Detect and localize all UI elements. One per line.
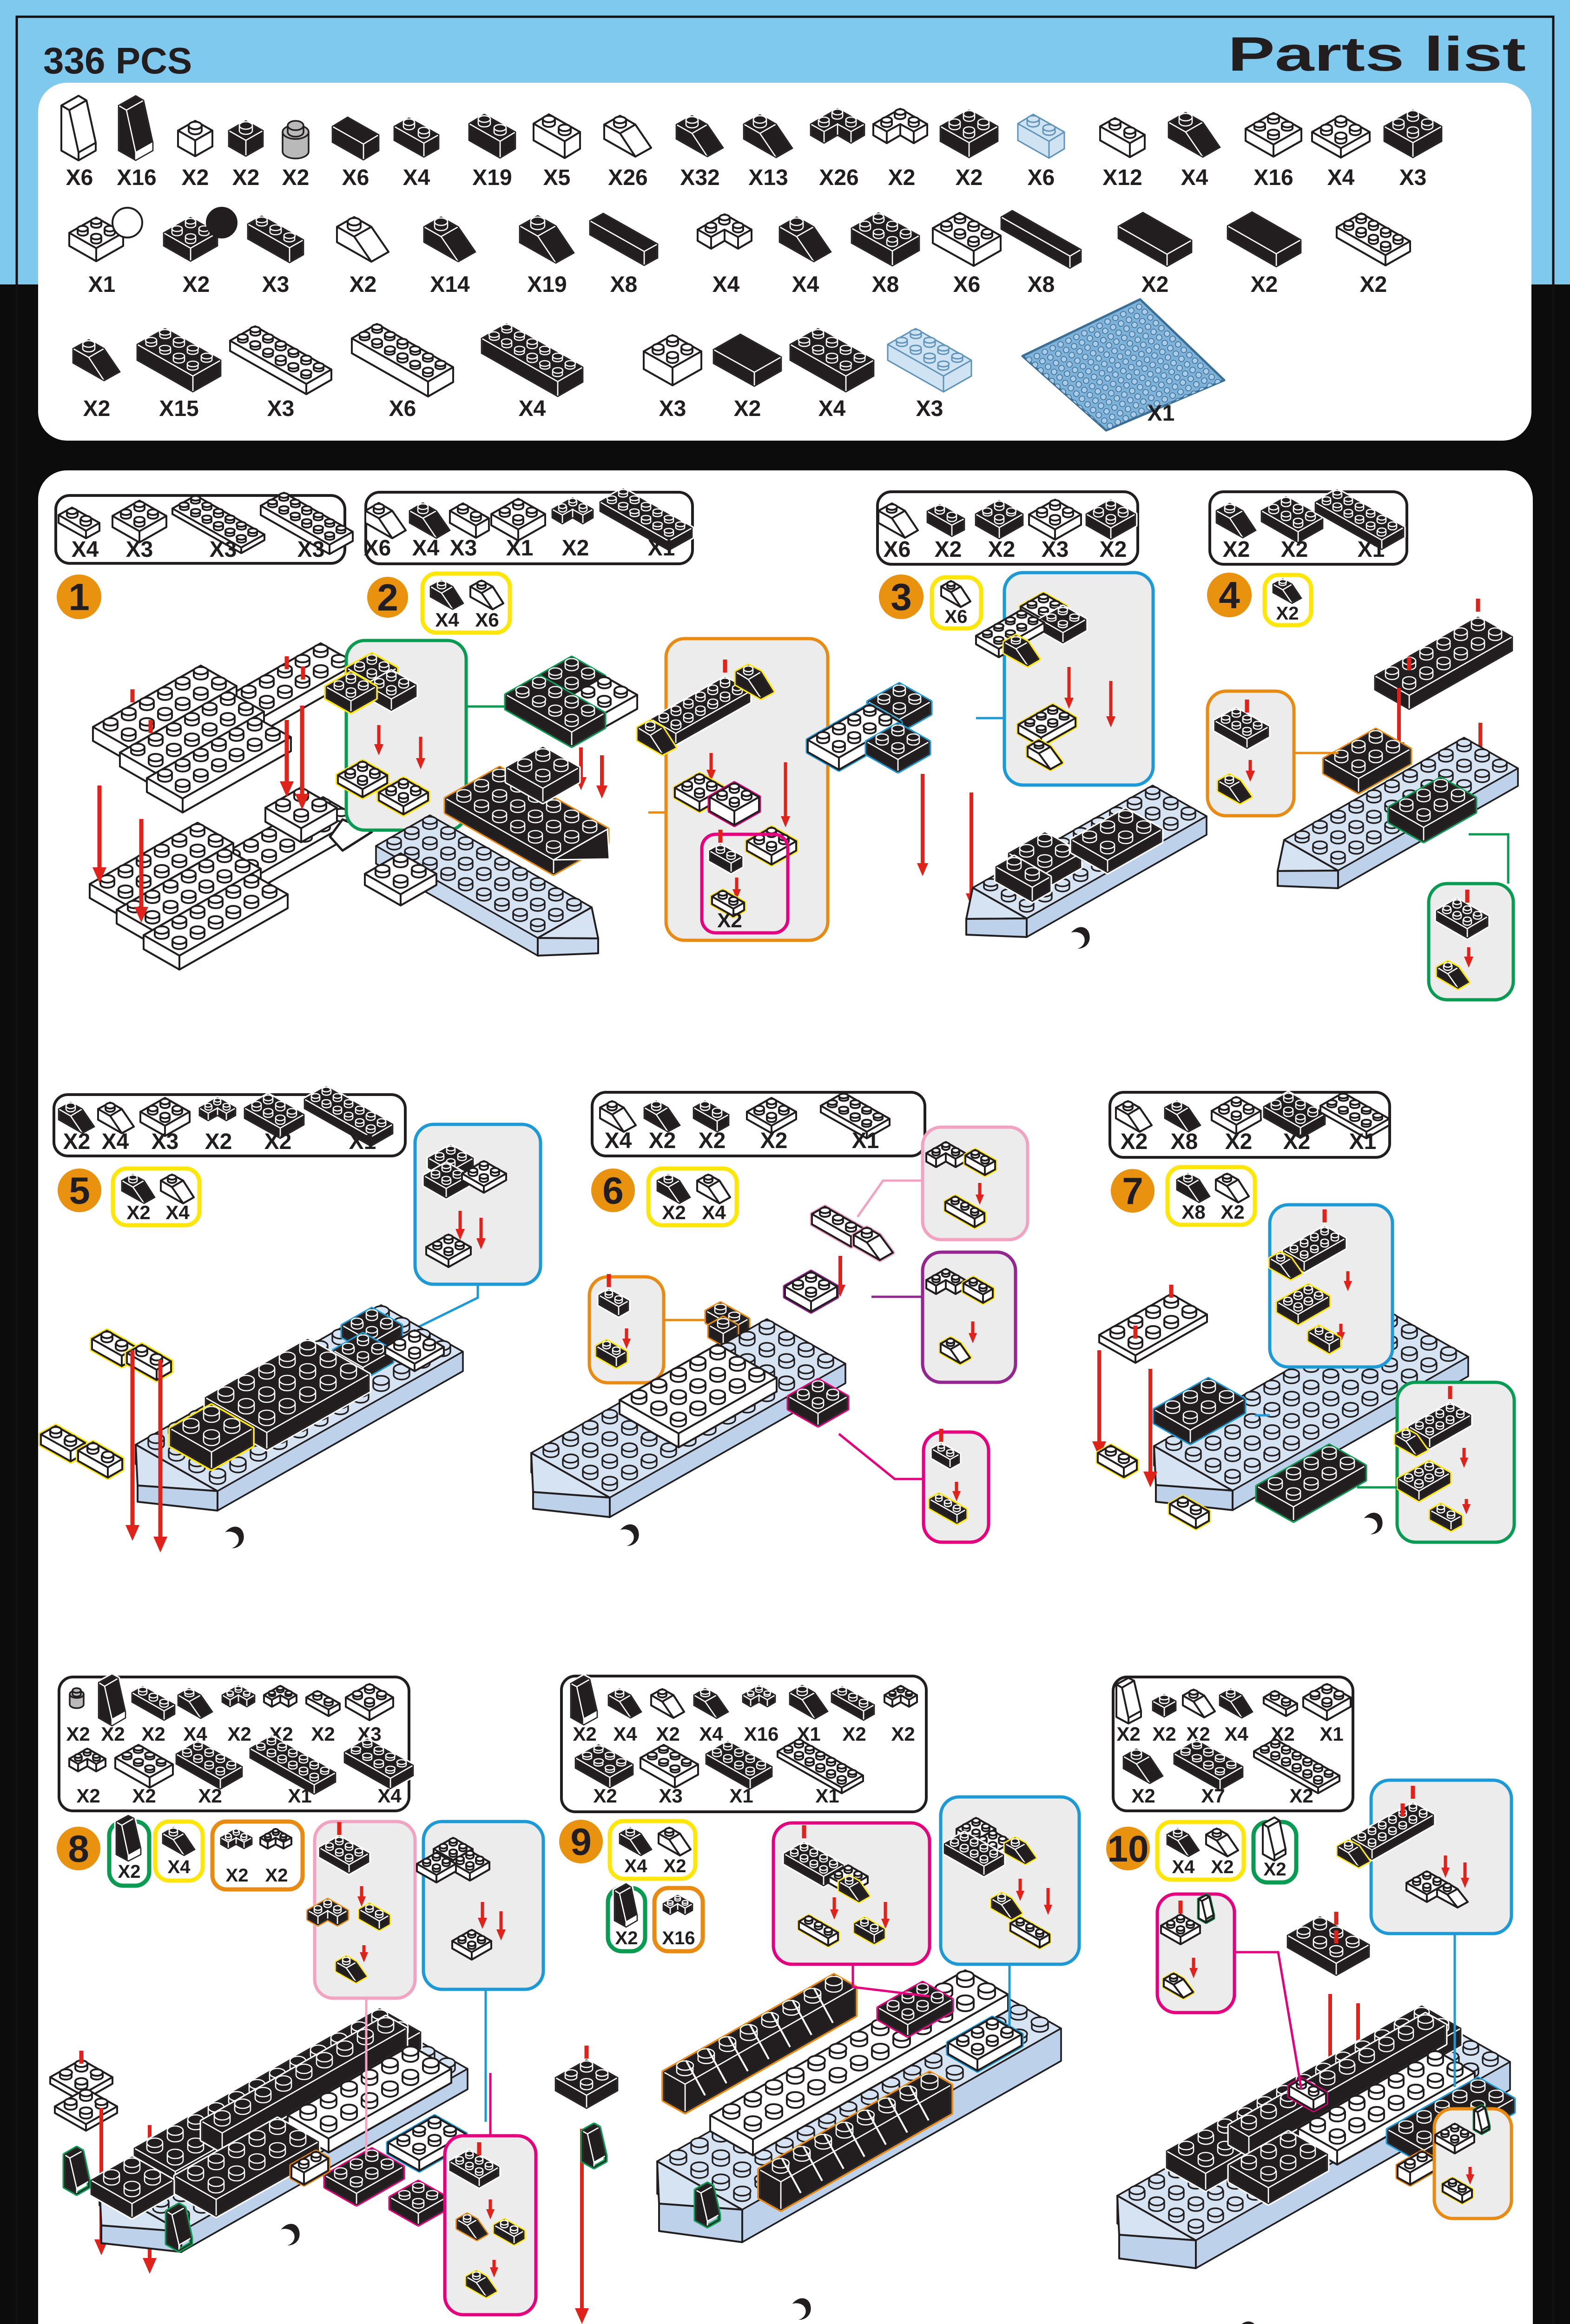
svg-text:X6: X6 bbox=[342, 165, 369, 190]
svg-text:X8: X8 bbox=[1028, 272, 1055, 297]
svg-text:X4: X4 bbox=[792, 272, 819, 297]
svg-text:X2: X2 bbox=[101, 1723, 125, 1745]
svg-text:X1: X1 bbox=[1319, 1723, 1343, 1745]
svg-text:5: 5 bbox=[69, 1170, 90, 1212]
svg-text:X2: X2 bbox=[226, 1865, 249, 1886]
svg-text:X1: X1 bbox=[648, 536, 675, 561]
svg-text:X1: X1 bbox=[288, 1785, 311, 1807]
svg-text:X4: X4 bbox=[168, 1857, 191, 1877]
svg-text:8: 8 bbox=[68, 1828, 89, 1870]
svg-text:X2: X2 bbox=[656, 1723, 679, 1745]
svg-text:X1: X1 bbox=[349, 1129, 376, 1154]
svg-text:X2: X2 bbox=[562, 536, 589, 561]
svg-text:X2: X2 bbox=[264, 1129, 292, 1154]
svg-text:X19: X19 bbox=[527, 272, 567, 297]
svg-text:X3: X3 bbox=[267, 396, 295, 421]
svg-text:X2: X2 bbox=[132, 1785, 156, 1807]
svg-text:X2: X2 bbox=[988, 537, 1016, 562]
svg-text:X2: X2 bbox=[1223, 537, 1250, 562]
svg-text:X4: X4 bbox=[1224, 1723, 1248, 1745]
svg-text:X8: X8 bbox=[1171, 1129, 1198, 1154]
svg-text:X2: X2 bbox=[76, 1785, 100, 1807]
svg-text:X4: X4 bbox=[72, 537, 99, 562]
svg-text:X1: X1 bbox=[729, 1785, 753, 1807]
svg-text:X2: X2 bbox=[141, 1723, 165, 1745]
svg-text:X4: X4 bbox=[519, 396, 546, 421]
svg-text:X2: X2 bbox=[842, 1723, 866, 1745]
svg-text:X2: X2 bbox=[1281, 537, 1308, 562]
svg-text:X6: X6 bbox=[475, 609, 499, 631]
svg-text:Parts list: Parts list bbox=[1228, 27, 1526, 81]
svg-text:X4: X4 bbox=[699, 1723, 723, 1745]
svg-text:7: 7 bbox=[1122, 1170, 1143, 1213]
svg-text:X2: X2 bbox=[891, 1723, 915, 1745]
svg-text:X2: X2 bbox=[66, 1723, 90, 1745]
svg-text:X3: X3 bbox=[210, 537, 237, 562]
svg-text:X2: X2 bbox=[126, 1202, 150, 1223]
svg-text:X4: X4 bbox=[377, 1785, 402, 1807]
svg-text:X2: X2 bbox=[1360, 272, 1387, 297]
svg-text:X2: X2 bbox=[265, 1865, 288, 1886]
svg-text:X6: X6 bbox=[953, 272, 981, 297]
svg-text:X4: X4 bbox=[1172, 1857, 1195, 1877]
svg-text:X4: X4 bbox=[403, 165, 430, 190]
svg-text:X4: X4 bbox=[412, 536, 440, 561]
svg-text:X3: X3 bbox=[450, 536, 477, 561]
svg-text:X2: X2 bbox=[760, 1129, 788, 1153]
svg-text:X2: X2 bbox=[717, 909, 742, 932]
svg-text:X26: X26 bbox=[608, 165, 647, 190]
svg-text:X3: X3 bbox=[262, 272, 290, 297]
svg-text:X3: X3 bbox=[1042, 537, 1069, 562]
svg-text:X1: X1 bbox=[815, 1785, 839, 1807]
svg-text:10: 10 bbox=[1108, 1828, 1149, 1869]
svg-text:X2: X2 bbox=[593, 1785, 617, 1807]
svg-text:X2: X2 bbox=[1121, 1129, 1148, 1154]
svg-text:X4: X4 bbox=[165, 1202, 190, 1223]
svg-text:X4: X4 bbox=[712, 272, 740, 297]
svg-text:X2: X2 bbox=[956, 165, 983, 190]
svg-text:X3: X3 bbox=[152, 1129, 179, 1154]
svg-text:X6: X6 bbox=[945, 607, 968, 627]
svg-text:X2: X2 bbox=[1251, 272, 1278, 297]
svg-text:X2: X2 bbox=[350, 272, 377, 297]
svg-text:2: 2 bbox=[377, 577, 398, 619]
svg-text:X6: X6 bbox=[1028, 165, 1055, 190]
svg-text:X2: X2 bbox=[1116, 1723, 1140, 1745]
svg-text:X2: X2 bbox=[1289, 1785, 1313, 1807]
svg-text:X3: X3 bbox=[659, 1785, 682, 1807]
svg-text:X14: X14 bbox=[430, 272, 470, 297]
svg-text:X3: X3 bbox=[297, 537, 325, 562]
svg-text:X2: X2 bbox=[1131, 1785, 1155, 1807]
svg-text:X2: X2 bbox=[205, 1129, 232, 1154]
svg-text:X2: X2 bbox=[664, 1856, 686, 1876]
svg-text:X2: X2 bbox=[232, 165, 260, 190]
svg-text:X1: X1 bbox=[88, 272, 116, 297]
svg-text:X4: X4 bbox=[1327, 165, 1355, 190]
svg-text:6: 6 bbox=[602, 1170, 624, 1212]
svg-text:X4: X4 bbox=[1181, 165, 1208, 190]
svg-text:X4: X4 bbox=[625, 1856, 648, 1876]
svg-text:X1: X1 bbox=[1148, 401, 1175, 426]
svg-text:X2: X2 bbox=[662, 1202, 686, 1223]
svg-text:3: 3 bbox=[891, 576, 912, 619]
svg-text:X2: X2 bbox=[888, 165, 916, 190]
svg-text:X2: X2 bbox=[1225, 1129, 1253, 1154]
svg-text:X2: X2 bbox=[1276, 603, 1299, 624]
svg-text:X2: X2 bbox=[1283, 1129, 1311, 1154]
svg-text:X2: X2 bbox=[198, 1785, 222, 1807]
svg-text:X1: X1 bbox=[1349, 1129, 1377, 1154]
svg-text:X2: X2 bbox=[1264, 1859, 1286, 1880]
svg-text:X19: X19 bbox=[472, 165, 512, 190]
svg-text:X6: X6 bbox=[364, 536, 391, 561]
svg-text:4: 4 bbox=[1219, 574, 1240, 617]
svg-text:X2: X2 bbox=[183, 272, 210, 297]
svg-text:X16: X16 bbox=[744, 1723, 779, 1745]
svg-text:X1: X1 bbox=[506, 536, 534, 561]
svg-text:X6: X6 bbox=[884, 537, 911, 562]
svg-text:X2: X2 bbox=[282, 165, 310, 190]
svg-text:X3: X3 bbox=[1399, 165, 1427, 190]
svg-text:X2: X2 bbox=[699, 1129, 726, 1153]
svg-text:X16: X16 bbox=[117, 165, 156, 190]
svg-text:X2: X2 bbox=[649, 1129, 676, 1153]
svg-text:X7: X7 bbox=[1201, 1785, 1225, 1807]
svg-text:X8: X8 bbox=[872, 272, 899, 297]
svg-text:X2: X2 bbox=[118, 1862, 141, 1882]
svg-text:X3: X3 bbox=[659, 396, 686, 421]
svg-text:X2: X2 bbox=[573, 1723, 596, 1745]
svg-text:X32: X32 bbox=[680, 165, 719, 190]
svg-text:X2: X2 bbox=[935, 537, 962, 562]
svg-text:X2: X2 bbox=[1100, 537, 1127, 562]
svg-text:X3: X3 bbox=[916, 396, 943, 421]
svg-text:X2: X2 bbox=[227, 1723, 251, 1745]
svg-text:X2: X2 bbox=[1211, 1857, 1234, 1877]
svg-text:X6: X6 bbox=[389, 396, 416, 421]
svg-text:X6: X6 bbox=[66, 165, 93, 190]
svg-text:X1: X1 bbox=[1358, 537, 1385, 562]
svg-text:X4: X4 bbox=[613, 1723, 637, 1745]
svg-text:X4: X4 bbox=[818, 396, 846, 421]
svg-text:X4: X4 bbox=[702, 1202, 726, 1223]
svg-text:X8: X8 bbox=[1181, 1201, 1205, 1223]
svg-text:X4: X4 bbox=[605, 1129, 632, 1153]
svg-text:X2: X2 bbox=[311, 1723, 335, 1745]
svg-text:X2: X2 bbox=[734, 396, 761, 421]
svg-text:X16: X16 bbox=[1253, 165, 1293, 190]
svg-text:X12: X12 bbox=[1102, 165, 1142, 190]
svg-text:9: 9 bbox=[570, 1821, 592, 1863]
svg-text:X8: X8 bbox=[610, 272, 638, 297]
svg-text:X2: X2 bbox=[83, 396, 111, 421]
svg-text:1: 1 bbox=[68, 576, 90, 619]
svg-text:X2: X2 bbox=[615, 1928, 638, 1948]
svg-text:X16: X16 bbox=[662, 1928, 695, 1948]
svg-text:X2: X2 bbox=[1220, 1201, 1244, 1223]
svg-text:X2: X2 bbox=[1152, 1723, 1176, 1745]
svg-text:X2: X2 bbox=[63, 1129, 91, 1154]
svg-text:X3: X3 bbox=[126, 537, 153, 562]
svg-text:X15: X15 bbox=[159, 396, 198, 421]
svg-text:X13: X13 bbox=[748, 165, 788, 190]
svg-text:X5: X5 bbox=[543, 165, 571, 190]
svg-text:X1: X1 bbox=[852, 1129, 879, 1153]
svg-text:X4: X4 bbox=[102, 1129, 129, 1154]
svg-text:X2: X2 bbox=[1141, 272, 1169, 297]
svg-text:X26: X26 bbox=[819, 165, 858, 190]
svg-text:X2: X2 bbox=[182, 165, 209, 190]
svg-text:336 PCS: 336 PCS bbox=[43, 40, 192, 81]
svg-text:X4: X4 bbox=[435, 609, 459, 631]
